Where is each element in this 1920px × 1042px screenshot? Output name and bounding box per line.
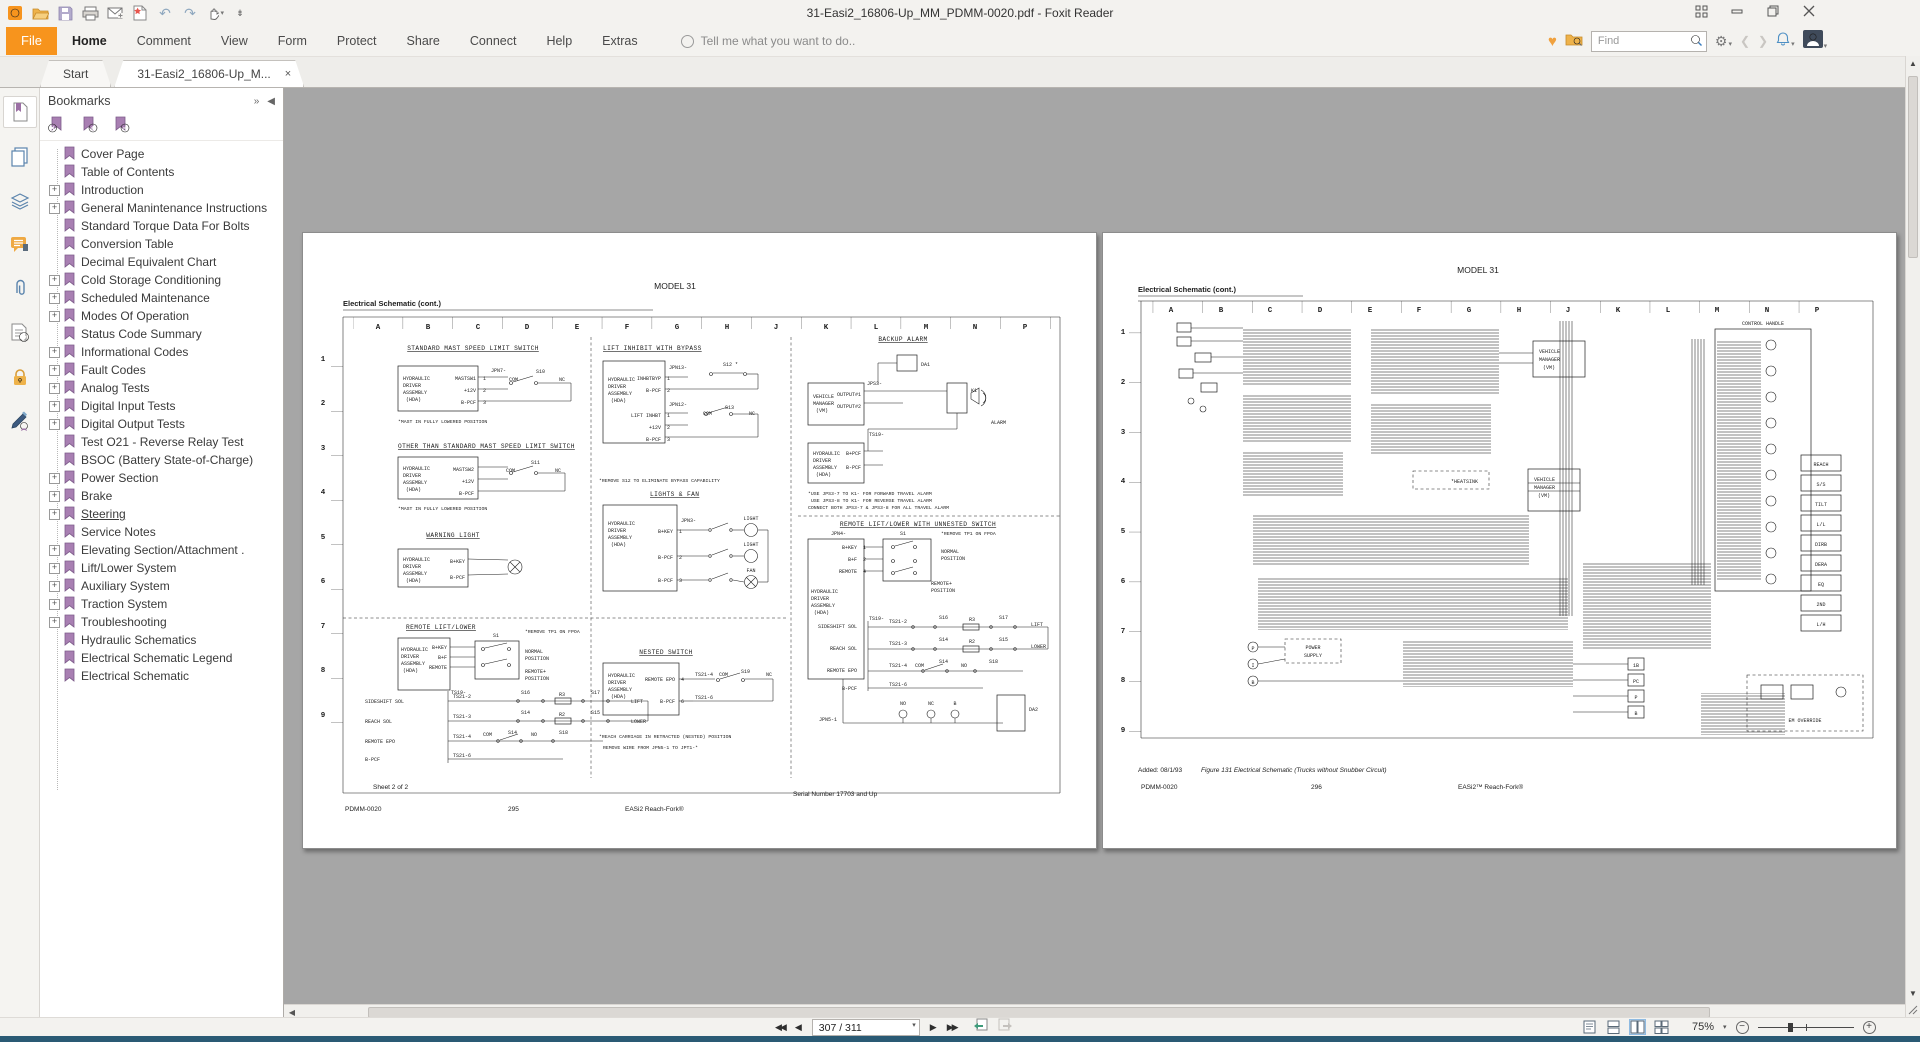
svg-text:Electrical Schematic (cont.): Electrical Schematic (cont.) [343,299,441,308]
ribbon-tab[interactable]: Protect [322,28,392,54]
svg-text:2: 2 [679,555,682,561]
svg-text:JPN3-: JPN3- [681,518,696,524]
svg-text:P: P [1634,695,1637,701]
expand-toggle-icon[interactable]: + [49,347,60,358]
bookmark-item[interactable]: + Troubleshooting [40,613,283,631]
svg-text:REMOTE+: REMOTE+ [931,581,952,587]
svg-text:B-PCF: B-PCF [450,575,465,581]
svg-text:(HDA): (HDA) [611,694,626,700]
svg-text:S15: S15 [999,637,1008,643]
svg-text:EM OVERRIDE: EM OVERRIDE [1788,718,1821,724]
svg-text:(VM): (VM) [1543,365,1555,371]
redo-icon[interactable]: ↷ [181,4,199,22]
svg-text:B-PCF: B-PCF [459,491,474,497]
expand-toggle-icon[interactable]: + [49,473,60,484]
page-navigation: ◀◀ ◀ ▾ ▶ ▶▶ [775,1018,1013,1036]
bookmark-flag-icon [64,668,75,685]
zoom-out-button[interactable]: − [1736,1021,1749,1034]
svg-text:S11: S11 [531,460,540,466]
window-bottom-edge [0,1036,1920,1042]
expand-toggle-icon[interactable]: + [49,185,60,196]
bookmark-item[interactable]: + Scheduled Maintenance [40,289,283,307]
svg-text:R2: R2 [969,639,975,645]
svg-text:S18: S18 [989,659,998,665]
expand-toggle-icon[interactable]: + [49,275,60,286]
zoom-slider-thumb[interactable] [1788,1023,1793,1032]
scroll-left-icon[interactable]: ◀ [284,1008,300,1017]
svg-text:MODEL 31: MODEL 31 [654,281,696,291]
svg-text:HYDRAULIC: HYDRAULIC [811,589,838,595]
bookmark-item[interactable]: + Cold Storage Conditioning [40,271,283,289]
svg-text:S14: S14 [939,637,948,643]
history-back-icon[interactable]: ❮ [1740,34,1750,48]
svg-text:H: H [725,324,730,332]
svg-text:LIFT: LIFT [1031,622,1043,628]
svg-text:K1: K1 [971,388,977,394]
close-button[interactable] [1798,2,1820,20]
email-icon[interactable] [106,4,124,22]
settings-gear-icon[interactable]: ⚙▾ [1715,34,1732,48]
svg-text:DRIVER: DRIVER [813,458,831,464]
document-area[interactable]: MODEL 31Electrical Schematic (cont.)ABCD… [284,88,1920,1020]
previous-page-button[interactable]: ◀ [795,1022,802,1033]
page-number-dropdown-icon[interactable]: ▾ [912,1021,916,1029]
svg-text:N: N [973,324,978,332]
like-heart-icon[interactable]: ♥ [1548,34,1557,49]
svg-text:NC: NC [766,672,772,678]
find-box [1591,31,1707,52]
ribbon-tab[interactable]: Share [392,28,455,54]
history-forward-icon[interactable]: ❯ [1758,34,1768,48]
svg-text:B+F: B+F [848,557,857,563]
svg-text:S16: S16 [521,690,530,696]
svg-text:LOWER: LOWER [1031,644,1046,650]
svg-text:ASSEMBLY: ASSEMBLY [403,480,427,486]
expand-toggle-icon[interactable]: + [49,383,60,394]
svg-text:3: 3 [1121,429,1126,437]
bookmark-item[interactable]: + Power Section [40,469,283,487]
bookmark-item[interactable]: + Steering [40,505,283,523]
bookmarks-panel-icon[interactable] [3,96,37,128]
bookmark-flag-icon [64,272,75,289]
zoom-slider[interactable] [1758,1020,1854,1034]
svg-text:COM: COM [719,672,728,678]
bookmark-item[interactable]: + Electrical Schematic Legend [40,649,283,667]
svg-text:POSITION: POSITION [525,656,549,662]
save-icon[interactable] [56,4,74,22]
svg-text:COM: COM [506,468,515,474]
bookmark-item[interactable]: + Electrical Schematic [40,667,283,685]
zoom-in-button[interactable]: + [1863,1021,1876,1034]
svg-text:REMOTE LIFT/LOWER WITH UNNESTE: REMOTE LIFT/LOWER WITH UNNESTED SWITCH [840,521,996,528]
bookmark-label: Scheduled Maintenance [81,291,210,305]
svg-text:LIFT INHIBIT WITH BYPASS: LIFT INHIBIT WITH BYPASS [603,345,702,352]
user-avatar[interactable]: ▾ [1803,30,1828,53]
layout-grid-icon[interactable] [1690,2,1712,20]
bookmark-label: Modes Of Operation [81,309,189,323]
bookmarks-list: + Cover Page + Table of Contents + [40,141,283,1020]
pages-panel-icon[interactable] [4,142,36,172]
vertical-scroll-thumb[interactable] [1908,76,1918,258]
expand-toggle-icon[interactable]: + [49,401,60,412]
ribbon-right-cluster: ♥ ⚙▾ ❮ ❯ ▾ ▾ [1548,26,1827,56]
zoom-dropdown-icon[interactable]: ▾ [1723,1023,1727,1031]
security-panel-icon[interactable] [4,362,36,392]
svg-text:POSITION: POSITION [525,676,549,682]
svg-text:S19: S19 [741,669,750,675]
expand-toggle-icon[interactable]: + [49,311,60,322]
svg-text:JPN4-: JPN4- [831,531,846,537]
vertical-scrollbar[interactable]: ▲ ▼ [1905,56,1920,1018]
svg-text:1: 1 [483,376,486,382]
collapse-panel-icon[interactable]: ◀ [267,96,275,107]
tab-close-icon[interactable]: × [285,68,291,80]
bookmark-flag-icon [64,362,75,379]
svg-text:2: 2 [321,400,326,408]
svg-text:(HDA): (HDA) [814,610,829,616]
bookmark-item[interactable]: + BSOC (Battery State-of-Charge) [40,451,283,469]
undo-icon[interactable]: ↶ [156,4,174,22]
new-document-icon[interactable] [131,4,149,22]
ribbon-tabs: Home Comment View Form Protect Share Con… [57,28,653,54]
pdf-page-left[interactable]: MODEL 31Electrical Schematic (cont.)ABCD… [302,232,1097,849]
bookmark-label: Test O21 - Reverse Relay Test [81,435,244,449]
bookmark-label: Digital Output Tests [81,417,185,431]
svg-text:HYDRAULIC: HYDRAULIC [403,557,430,563]
notifications-bell-icon[interactable]: ▾ [1776,32,1795,51]
svg-text:NC: NC [749,411,755,417]
svg-text:S14: S14 [508,730,517,736]
previous-view-button[interactable] [973,1018,988,1036]
svg-text:JPN5-1: JPN5-1 [819,717,837,723]
digital-signatures-panel-icon[interactable] [4,406,36,436]
last-page-button[interactable]: ▶▶ [947,1022,957,1033]
bookmark-item[interactable]: + Service Notes [40,523,283,541]
svg-text:HYDRAULIC: HYDRAULIC [401,647,428,653]
scroll-up-icon[interactable]: ▲ [1906,56,1920,72]
bookmark-item[interactable]: + Analog Tests [40,379,283,397]
expand-toggle-icon[interactable]: + [49,581,60,592]
svg-text:LIFT: LIFT [631,699,643,705]
delete-bookmark-icon[interactable] [48,116,66,138]
svg-text:P: P [1023,324,1028,332]
svg-text:TS21-3: TS21-3 [453,714,471,720]
bookmark-label: Standard Torque Data For Bolts [81,219,250,233]
zoom-level-label[interactable]: 75% [1692,1021,1714,1033]
svg-text:HYDRAULIC: HYDRAULIC [813,451,840,457]
svg-text:S1: S1 [900,531,906,537]
ribbon-tab[interactable]: Extras [587,28,652,54]
svg-text:D: D [1318,307,1323,315]
bookmark-item[interactable]: + Decimal Equivalent Chart [40,253,283,271]
svg-text:(HDA): (HDA) [406,578,421,584]
attachments-panel-icon[interactable] [4,274,36,304]
svg-text:3: 3 [679,578,682,584]
svg-text:*REMOVE TP1 ON FPOA: *REMOVE TP1 ON FPOA [941,531,996,537]
bookmarks-toolbar [40,114,283,141]
svg-text:USE JPS3-8 TO K1- FOR REVERSE: USE JPS3-8 TO K1- FOR REVERSE TRAVEL ALA… [811,498,932,504]
svg-text:(HDA): (HDA) [406,487,421,493]
next-view-button[interactable] [998,1018,1013,1036]
customize-toolbar-icon[interactable]: ⇟ [231,4,249,22]
svg-text:LIGHTS & FAN: LIGHTS & FAN [650,491,699,498]
svg-text:TS21-4: TS21-4 [889,663,907,669]
svg-text:B-PCF: B-PCF [461,400,476,406]
bookmark-flag-icon [64,200,75,217]
svg-text:REMOTE EPO: REMOTE EPO [645,677,675,683]
svg-text:1: 1 [667,376,670,382]
bookmark-item[interactable]: + Fault Codes [40,361,283,379]
svg-text:H: H [1517,307,1522,315]
svg-text:*MAST IN FULLY LOWERED POSITIO: *MAST IN FULLY LOWERED POSITION [398,506,487,512]
svg-text:BACKUP ALARM: BACKUP ALARM [878,336,927,343]
bookmark-label: Digital Input Tests [81,399,176,413]
bookmark-label: Troubleshooting [81,615,167,629]
svg-text:*REMOVE TP1 ON FPOA: *REMOVE TP1 ON FPOA [525,629,580,635]
svg-text:TS21-6: TS21-6 [453,753,471,759]
bookmark-label: Cover Page [81,147,144,161]
layers-panel-icon[interactable] [4,186,36,216]
expand-panel-icon[interactable]: » [254,96,260,107]
bookmark-flag-icon [64,650,75,667]
svg-text:MASTSW1: MASTSW1 [455,376,476,382]
expand-toggle-icon[interactable]: + [49,365,60,376]
bookmark-item[interactable]: + Digital Output Tests [40,415,283,433]
expand-toggle-icon[interactable]: + [49,545,60,556]
bookmark-flag-icon [64,218,75,235]
bookmark-label: Informational Codes [81,345,188,359]
tab-start[interactable]: Start [40,60,111,87]
single-page-view-icon[interactable] [1582,1020,1597,1034]
svg-text:L/L: L/L [1816,522,1825,528]
svg-text:REMOTE: REMOTE [429,665,447,671]
svg-text:*MAST IN FULLY LOWERED POSITIO: *MAST IN FULLY LOWERED POSITION [398,419,487,425]
foxit-logo-icon[interactable] [6,4,24,22]
svg-text:Sheet 2 of 2: Sheet 2 of 2 [373,784,408,791]
svg-text:DRIVER: DRIVER [608,528,626,534]
svg-text:JPN13-: JPN13- [669,365,687,371]
expand-toggle-icon[interactable]: + [49,617,60,628]
svg-text:F: F [625,324,630,332]
bookmark-label: Brake [81,489,112,503]
expand-toggle-icon[interactable]: + [49,419,60,430]
svg-text:6: 6 [1121,578,1126,586]
svg-text:HYDRAULIC: HYDRAULIC [403,466,430,472]
svg-text:PDMM-0020: PDMM-0020 [345,806,382,813]
form-fields-panel-icon[interactable] [4,318,36,348]
svg-text:NO: NO [961,663,967,669]
bookmark-item[interactable]: + Auxiliary System [40,577,283,595]
svg-text:2: 2 [483,388,486,394]
svg-text:6: 6 [321,578,326,586]
hand-tool-caret-icon[interactable]: ▾ [220,9,224,17]
svg-text:STANDARD MAST SPEED LIMIT SWIT: STANDARD MAST SPEED LIMIT SWITCH [407,345,539,352]
expand-toggle-icon[interactable]: + [49,509,60,520]
tell-me-icon [681,35,694,48]
svg-text:Figure 131 Electrical Schema: Figure 131 Electrical Schematic (Trucks … [1201,767,1387,774]
svg-text:K: K [1616,307,1621,315]
bookmark-item[interactable]: + Cover Page [40,145,283,163]
expand-toggle-icon[interactable]: + [49,563,60,574]
add-bookmark-icon[interactable] [80,116,98,138]
svg-text:Serial Number 17703 and Up: Serial Number 17703 and Up [793,791,878,798]
open-file-icon[interactable] [31,4,49,22]
continuous-view-icon[interactable] [1606,1020,1621,1034]
tab-file[interactable]: File [6,27,57,55]
svg-text:B+KEY: B+KEY [658,529,673,535]
svg-text:TS21-4: TS21-4 [453,734,471,740]
svg-text:HYDRAULIC: HYDRAULIC [608,377,635,383]
svg-text:TS21-6: TS21-6 [889,682,907,688]
bookmark-item[interactable]: + Standard Torque Data For Bolts [40,217,283,235]
svg-text:7: 7 [321,623,326,631]
bookmark-item[interactable]: + Hydraulic Schematics [40,631,283,649]
goto-bookmark-icon[interactable] [112,116,130,138]
bookmark-flag-icon [64,182,75,199]
bookmark-label: BSOC (Battery State-of-Charge) [81,453,253,467]
svg-text:NO: NO [900,701,906,707]
bookmark-item[interactable]: + Lift/Lower System [40,559,283,577]
svg-text:REMOTE EPO: REMOTE EPO [365,739,395,745]
ribbon-tab[interactable]: Home [57,28,122,54]
tell-me-box[interactable]: Tell me what you want to do.. [681,34,856,48]
svg-text:VEHICLE: VEHICLE [1534,477,1555,483]
bookmark-item[interactable]: + Modes Of Operation [40,307,283,325]
bookmark-item[interactable]: + Status Code Summary [40,325,283,343]
bookmark-label: Hydraulic Schematics [81,633,196,647]
svg-text:LIGHT: LIGHT [743,516,758,522]
ribbon-tab[interactable]: View [206,28,263,54]
bookmark-flag-icon [64,308,75,325]
tab-document[interactable]: 31-Easi2_16806-Up_M... × [114,60,304,87]
svg-text:*REACH CARRIAGE IN RETRACTED (: *REACH CARRIAGE IN RETRACTED (NESTED) PO… [599,734,732,740]
svg-text:B+PCF: B+PCF [846,451,861,457]
svg-text:B-PCF: B-PCF [660,699,675,705]
svg-text:ASSEMBLY: ASSEMBLY [813,465,837,471]
svg-text:S17: S17 [999,615,1008,621]
bookmark-item[interactable]: + Brake [40,487,283,505]
svg-text:REMOVE WIRE FROM JPN5-1 TO JPT: REMOVE WIRE FROM JPN5-1 TO JPT1-* [603,745,698,751]
expand-toggle-icon[interactable]: + [49,599,60,610]
svg-text:7: 7 [1121,628,1126,636]
first-page-button[interactable]: ◀◀ [775,1022,785,1033]
bookmark-item[interactable]: + Traction System [40,595,283,613]
minimize-button[interactable] [1726,2,1748,20]
svg-text:2: 2 [667,388,670,394]
expand-toggle-icon[interactable]: + [49,293,60,304]
bookmark-label: Electrical Schematic Legend [81,651,232,665]
bookmark-item[interactable]: + Table of Contents [40,163,283,181]
bookmark-flag-icon [64,398,75,415]
svg-text:4: 4 [681,677,684,683]
svg-text:S16: S16 [939,615,948,621]
svg-text:NC: NC [559,377,565,383]
scroll-down-icon[interactable]: ▼ [1906,986,1920,1002]
svg-text:B: B [1634,711,1637,717]
bookmark-flag-icon [64,380,75,397]
bookmark-item[interactable]: + Test O21 - Reverse Relay Test [40,433,283,451]
svg-text:NC: NC [928,701,934,707]
svg-text:+12V: +12V [462,479,474,485]
bookmark-item[interactable]: + General Manintenance Instructions [40,199,283,217]
page-number-input[interactable] [812,1019,920,1036]
svg-text:R3: R3 [969,617,975,623]
svg-text:TS21-2: TS21-2 [453,694,471,700]
ribbon-tab[interactable]: Help [531,28,587,54]
bookmark-flag-icon [64,488,75,505]
pdf-page-right[interactable]: MODEL 31Electrical Schematic (cont.)ABCD… [1102,232,1897,849]
find-search-icon[interactable] [1690,34,1703,52]
bookmark-item[interactable]: + Elevating Section/Attachment . [40,541,283,559]
svg-text:TS21-2: TS21-2 [889,619,907,625]
svg-text:K: K [824,324,829,332]
svg-text:*HEATSINK: *HEATSINK [1451,479,1478,485]
hand-tool-icon[interactable]: ▾ [206,4,224,22]
svg-text:B-PCF: B-PCF [646,437,661,443]
bookmark-label: Steering [81,507,126,521]
next-page-button[interactable]: ▶ [930,1022,937,1033]
svg-text:OUTPUT#1: OUTPUT#1 [837,392,861,398]
svg-text:B-PCF: B-PCF [846,465,861,471]
bookmark-item[interactable]: + Informational Codes [40,343,283,361]
window-controls [1690,2,1820,20]
comments-panel-icon[interactable] [4,230,36,260]
ribbon-tab[interactable]: Comment [122,28,206,54]
bookmark-item[interactable]: + Conversion Table [40,235,283,253]
bookmarks-panel-title: Bookmarks [48,94,111,108]
svg-text:COM: COM [703,411,712,417]
schematic-sheet-296: MODEL 31Electrical Schematic (cont.)ABCD… [1103,233,1896,848]
svg-text:6: 6 [681,699,684,705]
svg-text:A: A [376,324,381,332]
svg-text:L: L [874,324,879,332]
bookmark-label: Decimal Equivalent Chart [81,255,216,269]
search-folder-icon[interactable] [1565,32,1583,51]
svg-text:L: L [1666,307,1671,315]
schematic-sheet-295: MODEL 31Electrical Schematic (cont.)ABCD… [303,233,1096,848]
svg-text:PC: PC [1633,679,1639,685]
svg-text:JPN7-: JPN7- [491,368,506,374]
restore-button[interactable] [1762,2,1784,20]
svg-text:1: 1 [667,413,670,419]
svg-text:OUTPUT#2: OUTPUT#2 [837,404,861,410]
svg-text:5: 5 [1121,528,1126,536]
bookmark-flag-icon [64,164,75,181]
ribbon-tab[interactable]: Connect [455,28,532,54]
svg-text:P: P [1251,646,1254,652]
svg-text:(HDA): (HDA) [403,668,418,674]
expand-toggle-icon[interactable]: + [49,491,60,502]
facing-view-icon[interactable] [1630,1020,1645,1034]
expand-toggle-icon[interactable]: + [49,203,60,214]
print-icon[interactable] [81,4,99,22]
svg-text:ASSEMBLY: ASSEMBLY [401,661,425,667]
bookmark-label: Analog Tests [81,381,150,395]
svg-text:WARNING LIGHT: WARNING LIGHT [426,532,479,539]
svg-text:HYDRAULIC: HYDRAULIC [608,673,635,679]
ribbon-tab[interactable]: Form [263,28,322,54]
svg-text:B: B [426,324,431,332]
svg-text:OTHER THAN STANDARD MAST SPEED: OTHER THAN STANDARD MAST SPEED LIMIT SWI… [398,443,575,450]
continuous-facing-view-icon[interactable] [1654,1020,1669,1034]
svg-text:NORMAL: NORMAL [525,649,543,655]
svg-text:TS19-: TS19- [869,432,884,438]
svg-text:EASi2 Reach-Fork®: EASi2 Reach-Fork® [625,805,684,813]
svg-text:S1: S1 [493,633,499,639]
bookmark-item[interactable]: + Introduction [40,181,283,199]
bookmark-item[interactable]: + Digital Input Tests [40,397,283,415]
resize-corner-icon[interactable] [1906,1002,1920,1018]
